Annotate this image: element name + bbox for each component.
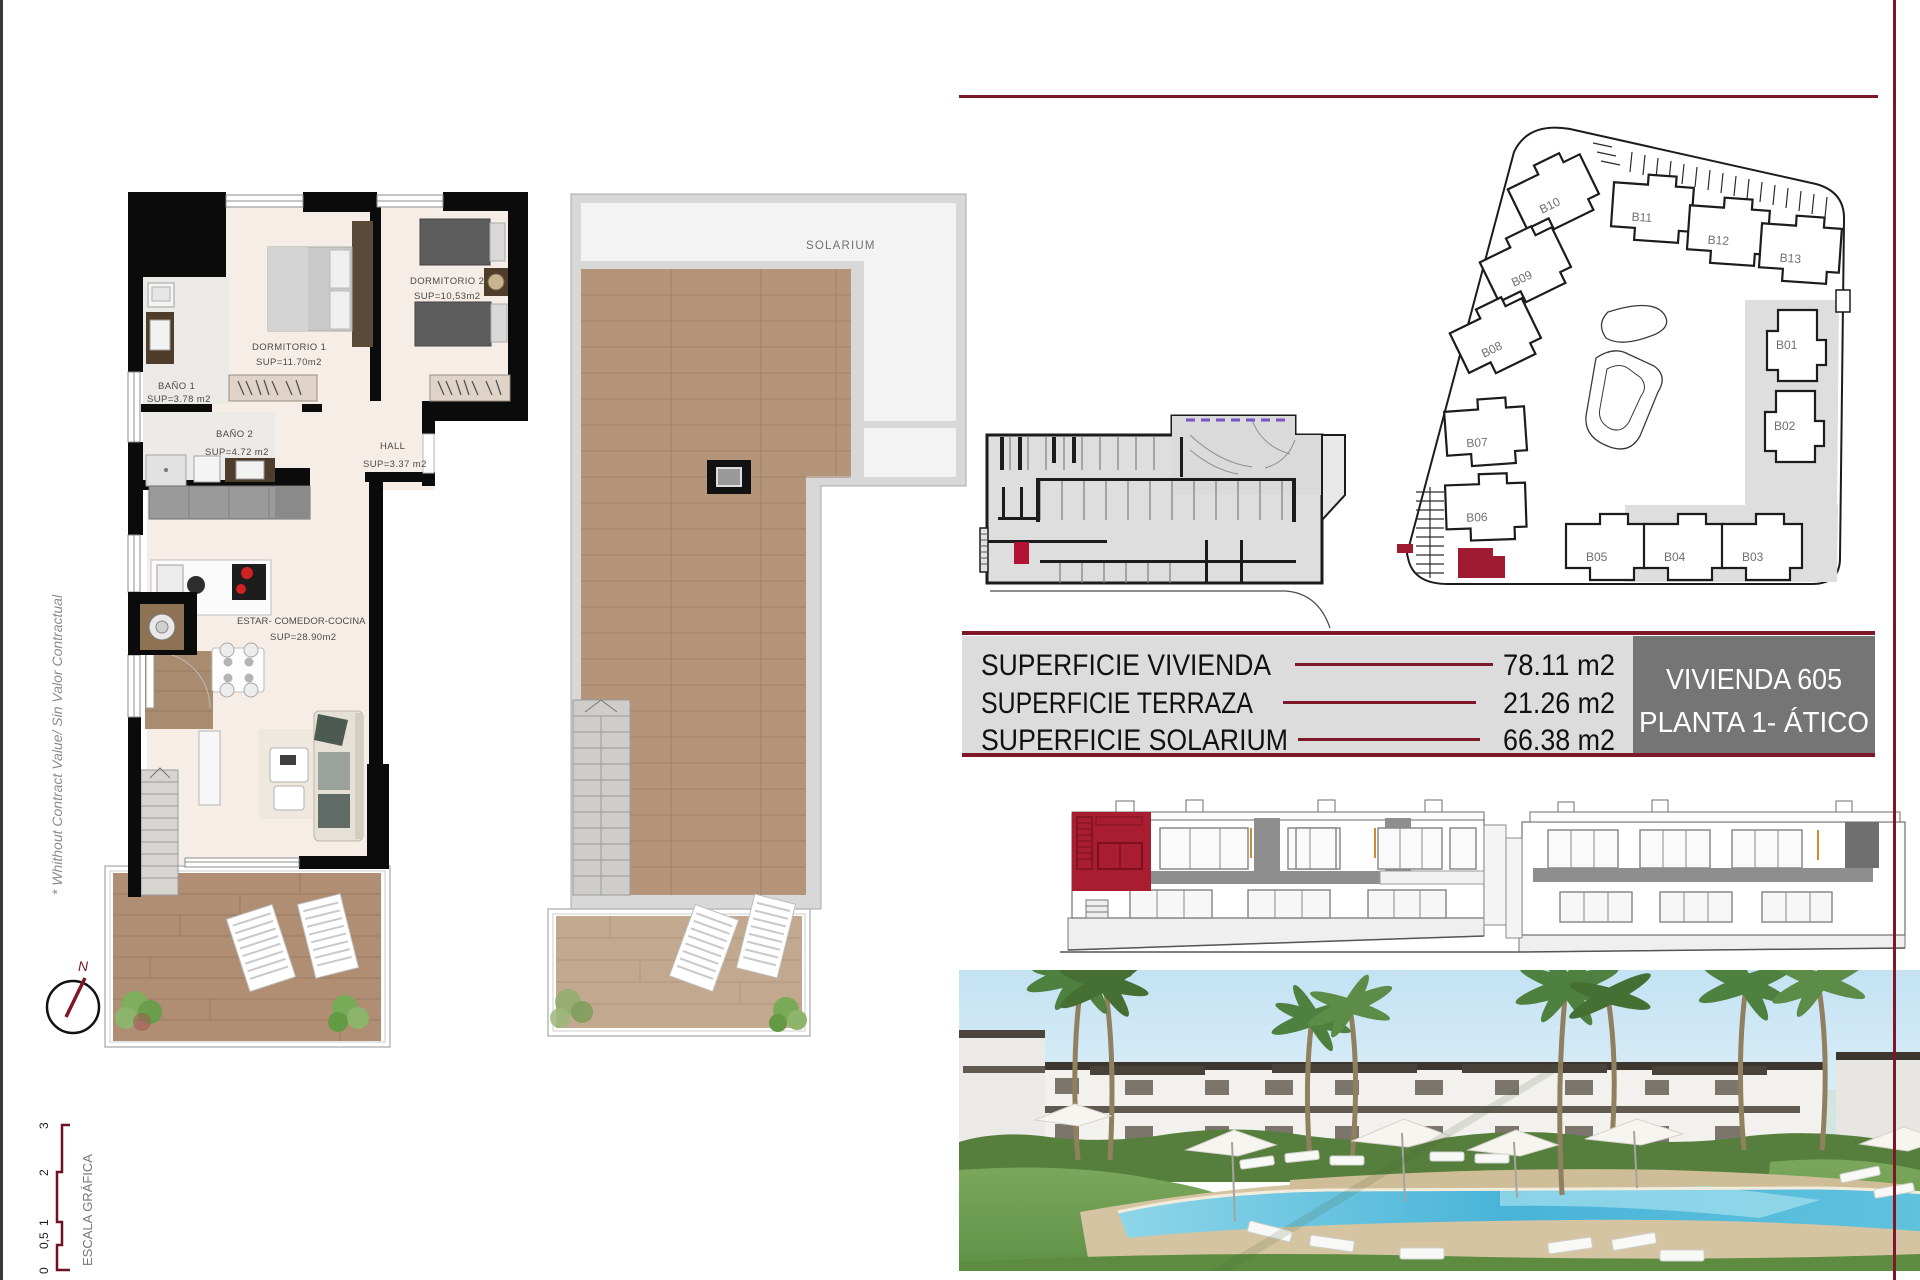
svg-text:ESTAR- COMEDOR-COCINA: ESTAR- COMEDOR-COCINA	[237, 616, 366, 627]
svg-text:PLANTA 1- ÁTICO: PLANTA 1- ÁTICO	[1639, 706, 1869, 739]
svg-text:SOLARIUM: SOLARIUM	[806, 240, 876, 252]
svg-text:2: 2	[37, 1169, 51, 1176]
svg-text:B12: B12	[1707, 233, 1730, 248]
svg-text:B01: B01	[1776, 338, 1798, 352]
svg-text:B03: B03	[1742, 550, 1764, 564]
svg-text:B05: B05	[1586, 550, 1608, 564]
svg-text:HALL: HALL	[380, 441, 405, 452]
svg-text:78.11 m2: 78.11 m2	[1503, 649, 1615, 682]
svg-text:B02: B02	[1774, 419, 1796, 433]
svg-text:BAÑO 2: BAÑO 2	[216, 429, 253, 440]
svg-text:ESCALA GRÁFICA: ESCALA GRÁFICA	[80, 1154, 95, 1266]
svg-text:BAÑO 1: BAÑO 1	[158, 381, 195, 392]
svg-text:B11: B11	[1631, 210, 1653, 225]
svg-text:3: 3	[37, 1122, 51, 1129]
svg-text:VIVIENDA 605: VIVIENDA 605	[1666, 664, 1842, 696]
svg-text:SUP=3.78 m2: SUP=3.78 m2	[147, 394, 211, 405]
svg-text:1: 1	[37, 1219, 51, 1226]
svg-text:DORMITORIO 1: DORMITORIO 1	[252, 342, 326, 353]
svg-text:SUP=4.72 m2: SUP=4.72 m2	[205, 447, 269, 458]
svg-text:SUPERFICIE TERRAZA: SUPERFICIE TERRAZA	[981, 687, 1253, 720]
svg-text:DORMITORIO 2: DORMITORIO 2	[410, 276, 484, 287]
svg-text:0: 0	[37, 1267, 51, 1274]
svg-text:* Whithout Contract Value/ Sin: * Whithout Contract Value/ Sin Valor Con…	[49, 594, 65, 895]
svg-text:SUP=10,53m2: SUP=10,53m2	[414, 291, 480, 302]
svg-text:SUP=3.37 m2: SUP=3.37 m2	[363, 459, 427, 470]
svg-text:21.26 m2: 21.26 m2	[1503, 687, 1615, 720]
svg-text:0,5: 0,5	[37, 1232, 51, 1249]
svg-text:B06: B06	[1466, 510, 1488, 525]
svg-text:SUPERFICIE SOLARIUM: SUPERFICIE SOLARIUM	[981, 724, 1288, 757]
svg-text:SUPERFICIE VIVIENDA: SUPERFICIE VIVIENDA	[981, 649, 1271, 682]
svg-text:SUP=11.70m2: SUP=11.70m2	[256, 357, 322, 368]
svg-text:SUP=28.90m2: SUP=28.90m2	[270, 632, 336, 643]
svg-text:N: N	[78, 958, 89, 974]
svg-text:B13: B13	[1779, 251, 1802, 266]
svg-text:B07: B07	[1466, 435, 1489, 450]
svg-text:66.38 m2: 66.38 m2	[1503, 724, 1615, 757]
svg-text:B04: B04	[1664, 550, 1686, 564]
